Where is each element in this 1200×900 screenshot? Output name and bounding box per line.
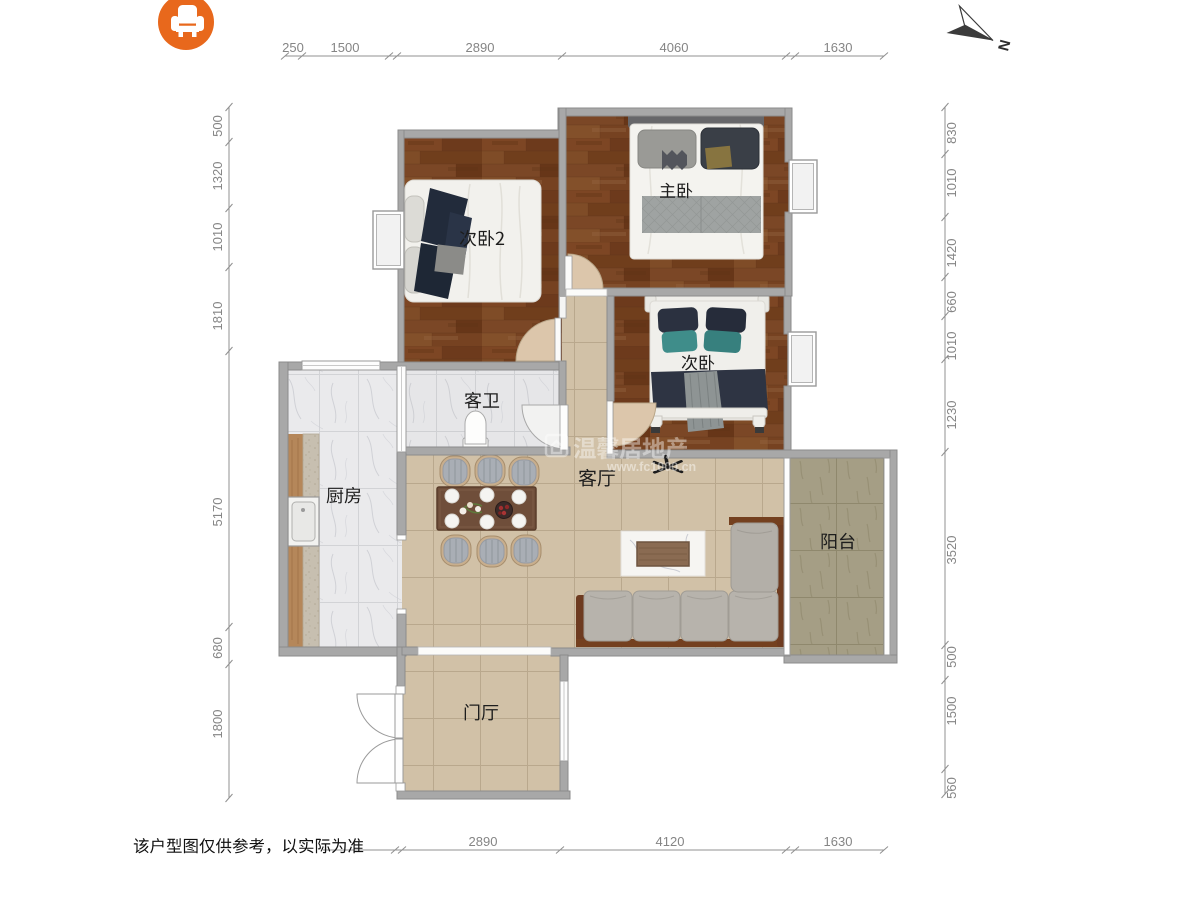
svg-text:500: 500	[944, 646, 959, 668]
svg-text:2890: 2890	[469, 834, 498, 849]
svg-text:1800: 1800	[210, 710, 225, 739]
svg-text:250: 250	[282, 40, 304, 55]
svg-text:2890: 2890	[466, 40, 495, 55]
svg-text:1630: 1630	[824, 834, 853, 849]
svg-text:1500: 1500	[944, 697, 959, 726]
svg-text:www.fc1000.cn: www.fc1000.cn	[606, 460, 696, 474]
svg-text:680: 680	[210, 637, 225, 659]
svg-text:5170: 5170	[210, 498, 225, 527]
svg-text:1630: 1630	[824, 40, 853, 55]
svg-text:500: 500	[210, 115, 225, 137]
svg-text:1500: 1500	[331, 40, 360, 55]
svg-text:830: 830	[944, 122, 959, 144]
svg-text:660: 660	[944, 291, 959, 313]
svg-text:1010: 1010	[944, 169, 959, 198]
svg-text:3520: 3520	[944, 536, 959, 565]
svg-text:4120: 4120	[656, 834, 685, 849]
svg-text:1420: 1420	[944, 239, 959, 268]
svg-text:4060: 4060	[660, 40, 689, 55]
svg-text:1230: 1230	[944, 401, 959, 430]
svg-text:1010: 1010	[944, 332, 959, 361]
svg-text:1010: 1010	[210, 223, 225, 252]
svg-text:1810: 1810	[210, 302, 225, 331]
svg-text:560: 560	[944, 777, 959, 799]
svg-text:1320: 1320	[210, 162, 225, 191]
